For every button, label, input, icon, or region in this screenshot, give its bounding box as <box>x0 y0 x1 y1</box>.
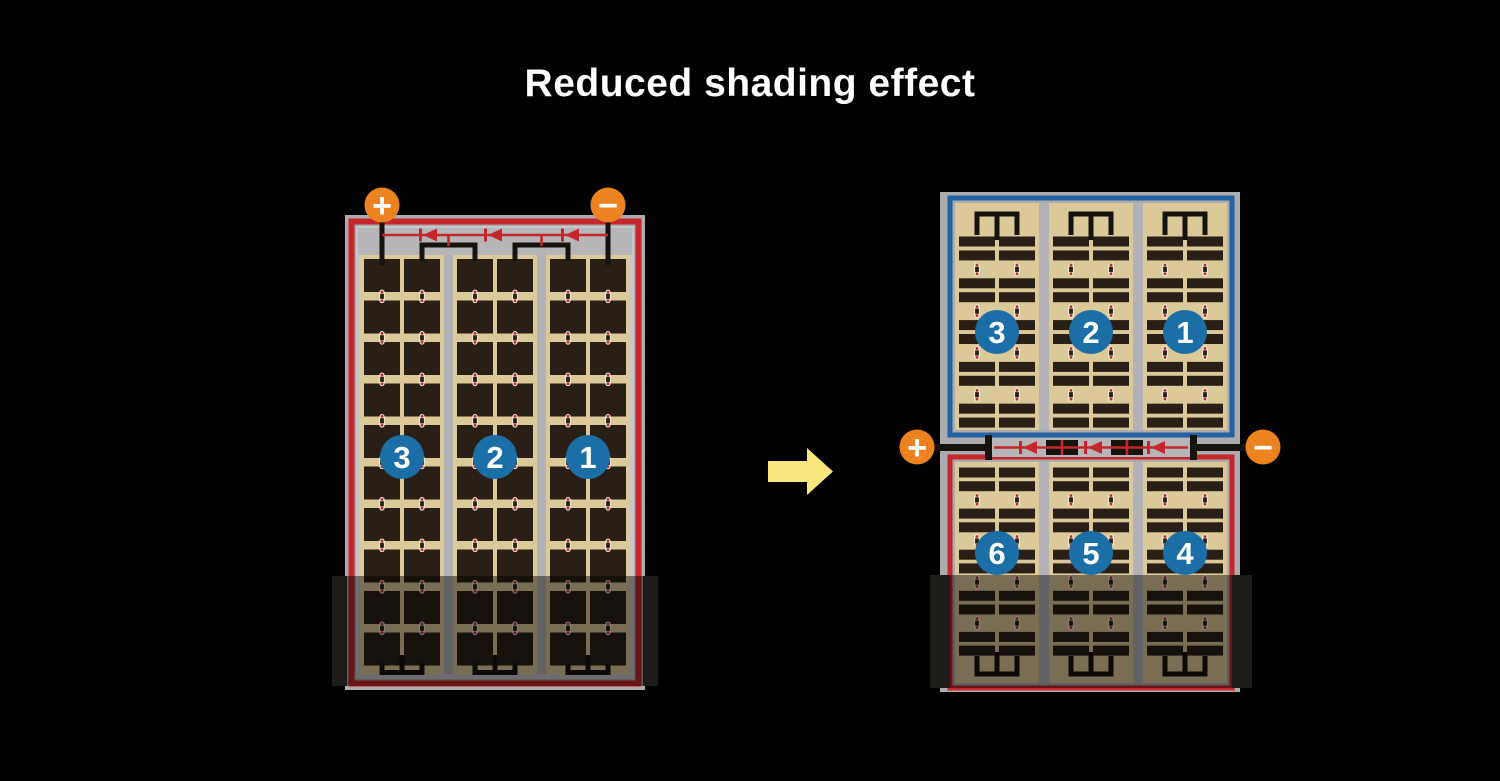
transition-arrow-icon <box>762 442 840 502</box>
half-cell-strip <box>1187 468 1223 478</box>
half-cell-strip <box>1187 250 1223 260</box>
interconnect-dot <box>567 498 570 501</box>
interconnect-bar <box>473 418 477 423</box>
interconnect-dot <box>421 424 424 427</box>
interconnect-bar <box>420 335 424 340</box>
interconnect-bar <box>1163 309 1167 314</box>
interconnect-dot <box>567 424 570 427</box>
solar-cell <box>550 342 586 375</box>
interconnect-bar <box>380 335 384 340</box>
left-panel-full-cell-module: 321+− <box>325 183 670 698</box>
half-cell-strip <box>999 522 1035 532</box>
half-cell-strip <box>999 237 1035 247</box>
interconnect-dot <box>474 415 477 418</box>
interconnect-bar <box>420 501 424 506</box>
half-cell-strip <box>1147 404 1183 414</box>
interconnect-dot <box>514 498 517 501</box>
interconnect-bar <box>513 418 517 423</box>
interconnect-dot <box>1016 263 1019 266</box>
interconnect-dot <box>567 507 570 510</box>
interconnect-dot <box>1110 314 1113 317</box>
interconnect-bar <box>1203 309 1207 314</box>
interconnect-dot <box>976 347 979 350</box>
interconnect-dot <box>1164 398 1167 401</box>
interconnect-bar <box>566 543 570 548</box>
solar-cell <box>550 508 586 541</box>
interconnect-bar <box>1203 267 1207 272</box>
right-panel-split-half-cell-module: 321654+− <box>890 178 1300 708</box>
interconnect-dot <box>567 373 570 376</box>
interconnect-dot <box>421 382 424 385</box>
bypass-diode-icon <box>484 229 487 242</box>
interconnect-bar <box>473 294 477 299</box>
interconnect-dot <box>1110 494 1113 497</box>
interconnect-bar <box>1203 392 1207 397</box>
interconnect-dot <box>1070 494 1073 497</box>
interconnect-dot <box>607 341 610 344</box>
interconnect-dot <box>607 539 610 542</box>
half-cell-strip <box>1053 404 1089 414</box>
interconnect-dot <box>474 382 477 385</box>
string-number-label: 5 <box>1082 536 1099 571</box>
half-cell-strip <box>1053 250 1089 260</box>
solar-cell <box>497 508 533 541</box>
interconnect-dot <box>1070 356 1073 359</box>
interconnect-dot <box>381 341 384 344</box>
bypass-diode-icon <box>561 229 564 242</box>
string-separator <box>1039 203 1049 430</box>
interconnect-dot <box>607 290 610 293</box>
interconnect-bar <box>566 501 570 506</box>
half-cell-strip <box>1053 418 1089 428</box>
interconnect-bar <box>1015 267 1019 272</box>
interconnect-dot <box>1070 398 1073 401</box>
interconnect-dot <box>421 415 424 418</box>
interconnect-dot <box>474 507 477 510</box>
interconnect-dot <box>474 424 477 427</box>
half-cell-strip <box>1093 418 1129 428</box>
half-cell-strip <box>1187 376 1223 386</box>
half-cell-strip <box>1187 522 1223 532</box>
interconnect-dot <box>1016 347 1019 350</box>
interconnect-dot <box>1164 347 1167 350</box>
solar-cell <box>497 342 533 375</box>
interconnect-dot <box>1070 389 1073 392</box>
half-cell-strip <box>1093 468 1129 478</box>
interconnect-bar <box>473 543 477 548</box>
interconnect-dot <box>1016 398 1019 401</box>
interconnect-bar <box>1109 350 1113 355</box>
string-number-label: 2 <box>486 440 503 475</box>
interconnect-bar <box>473 335 477 340</box>
half-cell-strip <box>959 418 995 428</box>
shading-overlay <box>930 575 1252 688</box>
half-cell-strip <box>1093 237 1129 247</box>
interconnect-bar <box>1109 392 1113 397</box>
interconnect-dot <box>1016 305 1019 308</box>
interconnect-dot <box>607 548 610 551</box>
interconnect-bar <box>566 418 570 423</box>
string-number-label: 6 <box>988 536 1005 571</box>
half-cell-strip <box>1093 278 1129 288</box>
interconnect-dot <box>1070 263 1073 266</box>
interconnect-dot <box>567 539 570 542</box>
solar-cell <box>590 508 626 541</box>
half-cell-strip <box>999 468 1035 478</box>
interconnect-dot <box>514 299 517 302</box>
interconnect-dot <box>1164 494 1167 497</box>
interconnect-dot <box>381 373 384 376</box>
half-cell-strip <box>959 237 995 247</box>
interconnect-dot <box>474 539 477 542</box>
interconnect-dot <box>421 548 424 551</box>
half-cell-strip <box>1053 481 1089 491</box>
interconnect-bar <box>380 418 384 423</box>
half-cell-strip <box>1187 292 1223 302</box>
solar-cell <box>457 342 493 375</box>
interconnect-dot <box>1164 389 1167 392</box>
interconnect-dot <box>421 290 424 293</box>
interconnect-bar <box>1069 497 1073 502</box>
interconnect-bar <box>1015 309 1019 314</box>
half-cell-strip <box>1053 522 1089 532</box>
interconnect-bar <box>513 501 517 506</box>
interconnect-dot <box>474 332 477 335</box>
solar-cell <box>590 342 626 375</box>
interconnect-dot <box>1204 389 1207 392</box>
half-cell-strip <box>1093 250 1129 260</box>
interconnect-bar <box>1015 497 1019 502</box>
half-cell-strip <box>1147 509 1183 519</box>
interconnect-bar <box>606 294 610 299</box>
interconnect-dot <box>381 424 384 427</box>
interconnect-dot <box>381 290 384 293</box>
half-cell-strip <box>999 278 1035 288</box>
half-cell-strip <box>959 509 995 519</box>
half-cell-strip <box>1147 522 1183 532</box>
interconnect-dot <box>474 341 477 344</box>
half-cell-strip <box>1147 292 1183 302</box>
interconnect-bar <box>380 501 384 506</box>
half-cell-strip <box>959 278 995 288</box>
interconnect-dot <box>1110 272 1113 275</box>
interconnect-dot <box>607 498 610 501</box>
interconnect-dot <box>1110 389 1113 392</box>
half-cell-strip <box>999 362 1035 372</box>
interconnect-bar <box>975 392 979 397</box>
interconnect-dot <box>421 332 424 335</box>
interconnect-bar <box>606 543 610 548</box>
interconnect-bar <box>473 501 477 506</box>
half-cell-strip <box>999 509 1035 519</box>
interconnect-dot <box>567 415 570 418</box>
half-cell-strip <box>1147 468 1183 478</box>
half-cell-strip <box>1147 418 1183 428</box>
interconnect-dot <box>976 398 979 401</box>
interconnect-dot <box>381 498 384 501</box>
interconnect-bar <box>513 294 517 299</box>
interconnect-dot <box>976 503 979 506</box>
interconnect-bar <box>380 294 384 299</box>
interconnect-dot <box>1204 305 1207 308</box>
interconnect-dot <box>514 382 517 385</box>
solar-cell <box>457 384 493 417</box>
diagram-canvas: Reduced shading effect 321+− 321654+− <box>0 0 1500 781</box>
string-number-label: 1 <box>1176 315 1193 350</box>
interconnect-dot <box>1204 263 1207 266</box>
half-cell-strip <box>1187 237 1223 247</box>
half-cell-strip <box>1053 237 1089 247</box>
interconnect-bar <box>380 543 384 548</box>
interconnect-bar <box>975 309 979 314</box>
half-cell-strip <box>1187 481 1223 491</box>
interconnect-bar <box>1109 267 1113 272</box>
half-cell-strip <box>1093 509 1129 519</box>
shading-overlay <box>332 576 658 686</box>
string-number-label: 3 <box>393 440 410 475</box>
solar-cell <box>364 384 400 417</box>
interconnect-dot <box>1070 535 1073 538</box>
interconnect-bar <box>473 377 477 382</box>
interconnect-bar <box>1163 350 1167 355</box>
interconnect-dot <box>976 305 979 308</box>
interconnect-dot <box>976 389 979 392</box>
interconnect-dot <box>607 299 610 302</box>
interconnect-dot <box>474 498 477 501</box>
interconnect-dot <box>1070 272 1073 275</box>
interconnect-bar <box>606 501 610 506</box>
solar-cell <box>404 384 440 417</box>
bypass-diode-icon <box>1084 441 1087 454</box>
half-cell-strip <box>1147 362 1183 372</box>
half-cell-strip <box>1053 376 1089 386</box>
half-cell-strip <box>1053 509 1089 519</box>
half-cell-strip <box>999 250 1035 260</box>
interconnect-dot <box>607 507 610 510</box>
half-cell-strip <box>1093 362 1129 372</box>
interconnect-dot <box>976 263 979 266</box>
interconnect-dot <box>976 314 979 317</box>
interconnect-dot <box>1016 494 1019 497</box>
bypass-diode-icon <box>419 229 422 242</box>
interconnect-bar <box>513 543 517 548</box>
string-number-label: 2 <box>1082 315 1099 350</box>
interconnect-dot <box>607 373 610 376</box>
interconnect-dot <box>514 415 517 418</box>
interconnect-dot <box>607 415 610 418</box>
interconnect-dot <box>1204 272 1207 275</box>
half-cell-strip <box>1053 362 1089 372</box>
interconnect-dot <box>514 341 517 344</box>
positive-terminal-label: + <box>372 187 392 225</box>
interconnect-dot <box>567 341 570 344</box>
half-cell-strip <box>959 404 995 414</box>
interconnect-dot <box>567 290 570 293</box>
bypass-diode-icon <box>1147 441 1150 454</box>
terminal-wire <box>930 444 987 451</box>
interconnect-bar <box>1069 267 1073 272</box>
solar-cell <box>404 508 440 541</box>
half-cell-strip <box>1147 250 1183 260</box>
interconnect-dot <box>976 272 979 275</box>
interconnect-dot <box>1016 535 1019 538</box>
solar-cell <box>590 301 626 334</box>
interconnect-dot <box>567 299 570 302</box>
half-cell-strip <box>1093 481 1129 491</box>
solar-cell <box>457 508 493 541</box>
interconnect-dot <box>474 548 477 551</box>
interconnect-bar <box>380 377 384 382</box>
interconnect-dot <box>1164 305 1167 308</box>
half-cell-strip <box>1093 404 1129 414</box>
negative-terminal-label: − <box>1253 429 1273 467</box>
interconnect-bar <box>513 335 517 340</box>
half-cell-strip <box>1093 522 1129 532</box>
interconnect-dot <box>1204 503 1207 506</box>
interconnect-bar <box>1203 350 1207 355</box>
half-cell-strip <box>959 362 995 372</box>
interconnect-dot <box>1070 347 1073 350</box>
half-cell-strip <box>1147 376 1183 386</box>
interconnect-dot <box>421 341 424 344</box>
interconnect-dot <box>381 539 384 542</box>
interconnect-dot <box>381 415 384 418</box>
interconnect-dot <box>1016 356 1019 359</box>
interconnect-bar <box>606 335 610 340</box>
interconnect-dot <box>607 424 610 427</box>
interconnect-dot <box>607 332 610 335</box>
negative-terminal-label: − <box>598 187 618 225</box>
interconnect-bar <box>1163 392 1167 397</box>
interconnect-bar <box>1109 497 1113 502</box>
half-cell-strip <box>1053 468 1089 478</box>
half-cell-strip <box>999 292 1035 302</box>
interconnect-dot <box>1110 305 1113 308</box>
interconnect-dot <box>976 356 979 359</box>
solar-cell <box>364 342 400 375</box>
interconnect-dot <box>1016 272 1019 275</box>
interconnect-dot <box>1070 503 1073 506</box>
interconnect-dot <box>381 507 384 510</box>
interconnect-bar <box>1069 392 1073 397</box>
half-cell-strip <box>959 468 995 478</box>
half-cell-strip <box>999 418 1035 428</box>
interconnect-dot <box>1204 398 1207 401</box>
interconnect-bar <box>1069 309 1073 314</box>
half-cell-strip <box>1147 237 1183 247</box>
solar-cell <box>364 301 400 334</box>
interconnect-dot <box>1016 503 1019 506</box>
interconnect-bar <box>975 497 979 502</box>
interconnect-dot <box>514 373 517 376</box>
interconnect-bar <box>566 335 570 340</box>
interconnect-dot <box>1204 494 1207 497</box>
interconnect-bar <box>420 294 424 299</box>
interconnect-dot <box>567 382 570 385</box>
solar-cell <box>497 301 533 334</box>
half-cell-strip <box>1093 292 1129 302</box>
interconnect-dot <box>421 539 424 542</box>
interconnect-bar <box>1163 267 1167 272</box>
arrow-right-shape <box>768 448 833 495</box>
interconnect-dot <box>514 507 517 510</box>
interconnect-dot <box>1164 503 1167 506</box>
solar-cell <box>457 301 493 334</box>
interconnect-dot <box>1016 314 1019 317</box>
interconnect-dot <box>1016 389 1019 392</box>
interconnect-dot <box>1110 356 1113 359</box>
half-cell-strip <box>1147 481 1183 491</box>
interconnect-bar <box>975 350 979 355</box>
half-cell-strip <box>959 376 995 386</box>
half-cell-strip <box>959 522 995 532</box>
interconnect-dot <box>421 373 424 376</box>
interconnect-dot <box>1110 535 1113 538</box>
interconnect-dot <box>1164 272 1167 275</box>
interconnect-dot <box>607 382 610 385</box>
interconnect-bar <box>420 377 424 382</box>
interconnect-bar <box>1015 392 1019 397</box>
bypass-diode-icon <box>1019 441 1022 454</box>
half-cell-strip <box>1053 278 1089 288</box>
interconnect-dot <box>474 290 477 293</box>
interconnect-dot <box>474 373 477 376</box>
half-cell-strip <box>1053 292 1089 302</box>
half-cell-strip <box>1187 509 1223 519</box>
interconnect-dot <box>976 494 979 497</box>
half-cell-strip <box>959 481 995 491</box>
solar-cell <box>497 259 533 292</box>
interconnect-dot <box>381 548 384 551</box>
interconnect-dot <box>514 290 517 293</box>
interconnect-dot <box>1110 503 1113 506</box>
solar-cell <box>457 259 493 292</box>
interconnect-bar <box>1203 497 1207 502</box>
interconnect-bar <box>1163 497 1167 502</box>
half-cell-strip <box>959 292 995 302</box>
interconnect-bar <box>606 418 610 423</box>
interconnect-bar <box>513 377 517 382</box>
interconnect-bar <box>566 294 570 299</box>
half-cell-strip <box>1187 418 1223 428</box>
interconnect-dot <box>381 382 384 385</box>
half-cell-strip <box>1187 404 1223 414</box>
interconnect-dot <box>1204 535 1207 538</box>
half-cell-strip <box>999 376 1035 386</box>
half-cell-strip <box>999 404 1035 414</box>
solar-cell <box>404 259 440 292</box>
solar-cell <box>404 301 440 334</box>
interconnect-bar <box>420 418 424 423</box>
interconnect-dot <box>1070 305 1073 308</box>
interconnect-dot <box>1164 356 1167 359</box>
solar-cell <box>550 301 586 334</box>
string-separator <box>1133 203 1143 430</box>
interconnect-dot <box>421 498 424 501</box>
positive-terminal-label: + <box>907 429 927 467</box>
interconnect-dot <box>421 299 424 302</box>
interconnect-dot <box>381 299 384 302</box>
half-cell-strip <box>999 481 1035 491</box>
solar-cell <box>550 259 586 292</box>
interconnect-bar <box>1109 309 1113 314</box>
interconnect-bar <box>1015 350 1019 355</box>
solar-cell <box>497 384 533 417</box>
interconnect-dot <box>567 548 570 551</box>
interconnect-dot <box>514 539 517 542</box>
solar-cell <box>550 384 586 417</box>
interconnect-dot <box>381 332 384 335</box>
